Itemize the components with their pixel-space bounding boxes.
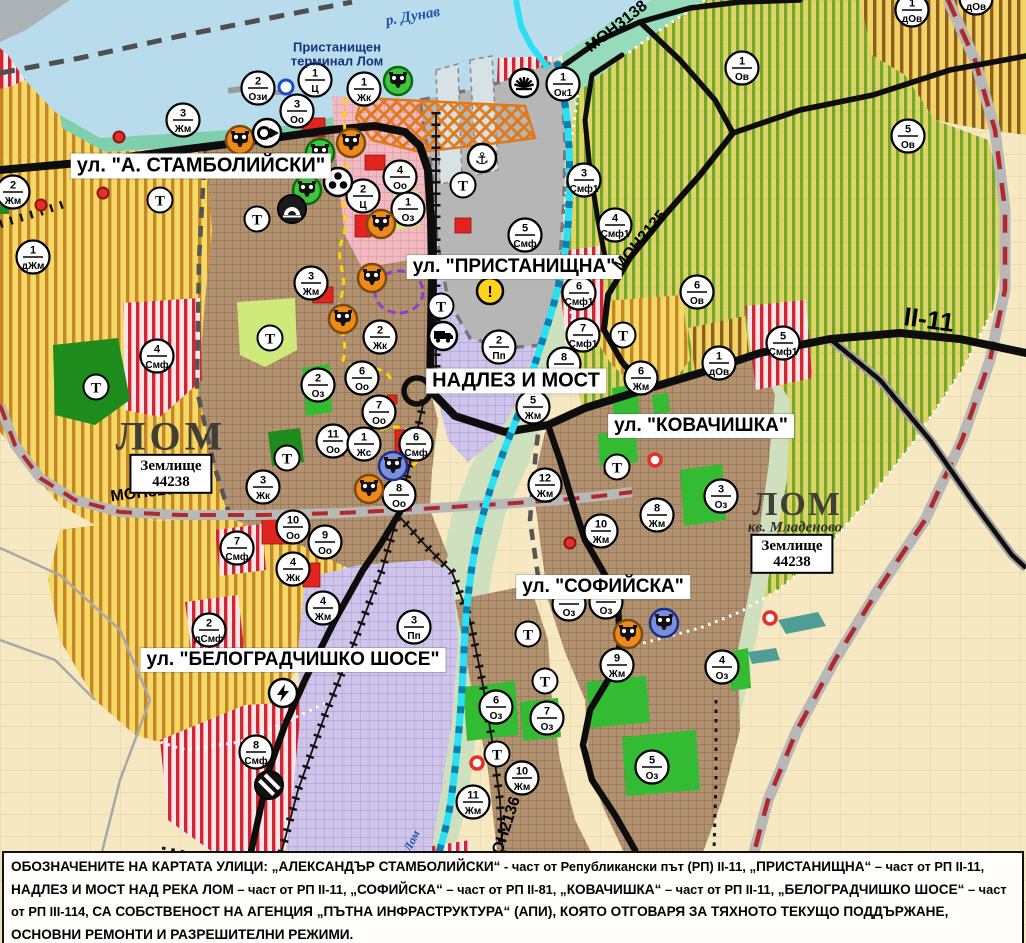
svg-text:Смф1: Смф1 — [570, 183, 599, 195]
zone-marker[interactable]: 4Жк — [277, 553, 310, 586]
svg-text:Жм: Жм — [174, 124, 191, 135]
svg-text:Т: Т — [458, 179, 468, 195]
zone-marker[interactable]: 1Ц — [299, 64, 332, 97]
svg-text:Смф: Смф — [225, 551, 248, 563]
zone-marker[interactable]: 2Пп — [483, 331, 516, 364]
svg-text:Т: Т — [252, 213, 262, 229]
zone-marker[interactable]: 8 — [548, 348, 581, 381]
zone-marker[interactable]: 10Жм — [585, 515, 618, 548]
transport-marker[interactable]: Т — [605, 455, 630, 480]
zone-marker[interactable]: 10Жм — [506, 762, 539, 795]
svg-text:Оз: Оз — [402, 213, 415, 224]
zone-marker[interactable]: 5Смф — [509, 219, 542, 252]
transport-marker[interactable]: Т — [485, 742, 510, 767]
svg-text:Ов: Ов — [901, 140, 915, 151]
svg-text:7: 7 — [376, 400, 382, 412]
transport-marker[interactable]: Т — [533, 669, 558, 694]
svg-text:Пп: Пп — [492, 351, 505, 362]
svg-text:Ок1: Ок1 — [554, 88, 573, 99]
svg-text:1: 1 — [361, 77, 367, 89]
transport-marker[interactable]: Т — [84, 375, 109, 400]
svg-text:Жм: Жм — [536, 489, 553, 500]
svg-text:Смф: Смф — [513, 238, 536, 250]
svg-text:8: 8 — [253, 740, 259, 752]
svg-text:Ц: Ц — [359, 200, 367, 211]
zone-marker[interactable]: 5Смф1 — [767, 327, 800, 360]
zone-marker[interactable]: 12Жм — [529, 469, 562, 502]
svg-text:Жм: Жм — [592, 535, 609, 546]
svg-text:2: 2 — [206, 618, 212, 630]
svg-text:Т: Т — [265, 332, 275, 348]
svg-text:10: 10 — [287, 515, 299, 527]
zone-marker[interactable]: 7Смф — [221, 532, 254, 565]
svg-text:Смф: Смф — [404, 447, 427, 459]
svg-text:Оо: Оо — [355, 382, 369, 393]
zone-marker[interactable]: 9Жм — [601, 649, 634, 682]
svg-text:Оз: Оз — [716, 671, 729, 682]
svg-text:Оз: Оз — [646, 771, 659, 782]
svg-text:2: 2 — [360, 184, 366, 196]
map-canvas: 2Ози1Ц1Жк3Оо3Жм2Жм1дЖм1Ок13Смф14Смф15Смф… — [0, 0, 1026, 943]
svg-text:Ов: Ов — [690, 296, 704, 307]
culture-orange-icon[interactable] — [226, 126, 254, 154]
transport-marker[interactable]: Т — [275, 446, 300, 471]
svg-text:6: 6 — [359, 366, 365, 378]
svg-text:7: 7 — [234, 536, 240, 548]
svg-text:Жм: Жм — [302, 287, 319, 298]
legend-note-segment: „СОФИЙСКА“ — [350, 882, 443, 897]
svg-text:Жм: Жм — [314, 612, 331, 623]
svg-text:Жк: Жк — [356, 93, 372, 104]
svg-text:Смф1: Смф1 — [601, 228, 630, 240]
warning-icon[interactable]: ! — [477, 278, 503, 304]
red-dot — [114, 132, 125, 143]
red-ring — [471, 757, 483, 769]
svg-text:3: 3 — [294, 99, 300, 111]
svg-text:1: 1 — [30, 245, 36, 257]
svg-text:4: 4 — [154, 344, 161, 356]
svg-text:3: 3 — [260, 475, 266, 487]
truck-icon[interactable] — [429, 322, 457, 350]
svg-text:Смф1: Смф1 — [569, 338, 598, 350]
culture-blue-icon[interactable] — [379, 452, 407, 480]
svg-text:Жм: Жм — [648, 519, 665, 530]
svg-text:4: 4 — [320, 596, 327, 608]
svg-text:Смф: Смф — [244, 755, 267, 767]
svg-text:Оо: Оо — [393, 181, 407, 192]
culture-green-icon[interactable] — [384, 67, 412, 95]
marker-overlay: 2Ози1Ц1Жк3Оо3Жм2Жм1дЖм1Ок13Смф14Смф15Смф… — [0, 0, 1026, 943]
svg-text:Жс: Жс — [356, 448, 372, 459]
red-ring — [764, 612, 776, 624]
svg-text:Смф: Смф — [145, 359, 168, 371]
zone-marker[interactable]: 4Жм — [307, 592, 340, 625]
legend-note-segment: „БЕЛОГРАДЧИШКО ШОСЕ“ — [778, 882, 965, 897]
svg-text:9: 9 — [322, 530, 328, 542]
culture-orange-icon[interactable] — [355, 475, 383, 503]
svg-text:Оз: Оз — [541, 722, 554, 733]
zone-marker[interactable]: 1Ов — [726, 52, 759, 85]
zone-marker[interactable]: 5Жм — [517, 391, 550, 424]
svg-text:Т: Т — [436, 300, 446, 316]
zone-marker[interactable]: 10Оо — [277, 511, 310, 544]
zone-marker[interactable]: 4Оо — [384, 161, 417, 194]
zone-marker[interactable]: 6Смф1 — [563, 277, 596, 310]
transport-marker[interactable]: Т — [148, 188, 173, 213]
zone-marker[interactable]: 2Оз — [302, 369, 335, 402]
svg-text:Т: Т — [91, 381, 101, 397]
svg-text:3: 3 — [180, 108, 186, 120]
zone-marker[interactable]: 7Оо — [363, 396, 396, 429]
svg-text:1: 1 — [560, 72, 566, 84]
zone-marker[interactable]: 2Жм — [0, 176, 30, 209]
svg-text:5: 5 — [522, 223, 528, 235]
svg-text:!: ! — [487, 284, 492, 301]
svg-text:5: 5 — [780, 331, 786, 343]
transport-marker[interactable]: Т — [245, 207, 270, 232]
zone-marker[interactable]: 4Смф — [141, 340, 174, 373]
svg-text:Жк: Жк — [255, 491, 271, 502]
zone-marker[interactable]: 3Жм — [295, 267, 328, 300]
svg-text:1: 1 — [405, 197, 411, 209]
svg-text:Т: Т — [612, 461, 622, 477]
svg-text:8: 8 — [396, 483, 402, 495]
svg-text:Жк: Жк — [372, 341, 388, 352]
transport-marker[interactable]: Т — [258, 326, 283, 351]
svg-text:Т: Т — [492, 748, 502, 764]
zone-marker[interactable]: 3Оо — [281, 95, 314, 128]
culture-orange-icon[interactable] — [614, 620, 642, 648]
svg-text:Жм: Жм — [464, 806, 481, 817]
svg-text:11: 11 — [327, 429, 339, 441]
zone-marker[interactable]: 2Ози — [242, 72, 275, 105]
svg-text:1: 1 — [716, 351, 722, 363]
legend-note: ОБОЗНАЧЕНИТЕ НА КАРТАТА УЛИЦИ: „АЛЕКСАНД… — [2, 851, 1024, 943]
zone-marker[interactable]: 3Жм — [167, 104, 200, 137]
legend-note-segment: – част от РП II-11, — [871, 859, 984, 874]
svg-text:Т: Т — [523, 628, 533, 644]
svg-text:Жк: Жк — [285, 573, 301, 584]
transport-marker[interactable]: Т — [451, 173, 476, 198]
svg-text:Оз: Оз — [312, 389, 325, 400]
svg-text:Оо: Оо — [318, 546, 332, 557]
svg-text:Жм: Жм — [4, 196, 21, 207]
svg-text:Оз: Оз — [490, 711, 503, 722]
legend-note-segment: - част от Републикански път (РП) II-11, — [500, 859, 749, 874]
blue-ring — [279, 80, 293, 94]
zone-marker[interactable]: 1дОв — [703, 347, 736, 380]
svg-text:6: 6 — [638, 366, 644, 378]
svg-text:⚓: ⚓ — [475, 149, 489, 168]
svg-text:7: 7 — [544, 706, 550, 718]
svg-text:дОв: дОв — [709, 367, 729, 378]
svg-text:3: 3 — [308, 271, 314, 283]
svg-text:1: 1 — [361, 432, 367, 444]
svg-text:10: 10 — [595, 519, 607, 531]
svg-text:3: 3 — [411, 615, 417, 627]
zone-marker[interactable]: 3Пп — [398, 611, 431, 644]
svg-text:Смф1: Смф1 — [565, 296, 594, 308]
transport-marker[interactable]: Т — [429, 294, 454, 319]
zone-marker[interactable]: 5Ов — [892, 120, 925, 153]
zone-marker[interactable]: 7Оз — [531, 702, 564, 735]
svg-text:3: 3 — [581, 168, 587, 180]
svg-text:10: 10 — [516, 766, 528, 778]
svg-text:2: 2 — [255, 76, 261, 88]
svg-text:6: 6 — [694, 280, 700, 292]
zone-marker[interactable]: 8Смф — [240, 736, 273, 769]
zone-marker[interactable]: 2Жк — [364, 321, 397, 354]
svg-text:Оо: Оо — [286, 531, 300, 542]
svg-text:Оо: Оо — [326, 445, 340, 456]
red-dot — [565, 538, 576, 549]
svg-text:1: 1 — [312, 68, 318, 80]
zone-marker[interactable]: 6Оз — [480, 691, 513, 724]
crane-icon[interactable] — [510, 69, 538, 97]
svg-text:12: 12 — [539, 473, 551, 485]
legend-note-segment: „ПРИСТАНИЩНА“ — [749, 859, 871, 874]
zone-marker[interactable]: 3Смф1 — [568, 164, 601, 197]
svg-text:4: 4 — [290, 557, 297, 569]
lightning-icon[interactable] — [269, 679, 297, 707]
svg-text:дОв: дОв — [902, 14, 922, 25]
svg-text:6: 6 — [413, 432, 419, 444]
zone-marker[interactable]: 6Жм — [625, 362, 658, 395]
svg-text:6: 6 — [576, 281, 582, 293]
culture-orange-icon[interactable] — [367, 210, 395, 238]
svg-text:Оо: Оо — [290, 115, 304, 126]
trefoil-icon[interactable] — [324, 168, 352, 196]
legend-note-segment: – част от РП II-11, — [661, 882, 777, 897]
transport-marker[interactable]: Т — [611, 323, 636, 348]
zone-marker[interactable]: 4Оз — [706, 651, 739, 684]
svg-text:2: 2 — [377, 325, 383, 337]
zone-marker[interactable]: Оз — [553, 588, 586, 621]
svg-text:5: 5 — [649, 755, 655, 767]
svg-text:2: 2 — [10, 180, 16, 192]
red-dot — [98, 188, 109, 199]
culture-blue-icon[interactable] — [650, 609, 678, 637]
zone-marker[interactable]: 9Оо — [309, 526, 342, 559]
culture-orange-icon[interactable] — [329, 305, 357, 333]
zone-marker[interactable]: 1дОв — [960, 0, 993, 15]
svg-text:5: 5 — [530, 395, 536, 407]
svg-text:Жм: Жм — [632, 382, 649, 393]
zone-marker[interactable]: 8Жм — [641, 499, 674, 532]
legend-note-segment: – част от РП II-81, — [443, 882, 560, 897]
red-ring — [649, 454, 661, 466]
zone-marker[interactable]: 4Смф1 — [599, 209, 632, 242]
svg-text:7: 7 — [580, 323, 586, 335]
zone-marker[interactable]: 1дЖм — [17, 241, 50, 274]
svg-text:Т: Т — [282, 452, 292, 468]
zone-marker[interactable]: 8Оо — [383, 479, 416, 512]
zone-marker[interactable]: 1Ок1 — [547, 68, 580, 101]
zone-marker[interactable]: 1Жк — [348, 73, 381, 106]
svg-text:3: 3 — [718, 484, 724, 496]
svg-text:2: 2 — [496, 335, 502, 347]
svg-text:Жм: Жм — [524, 411, 541, 422]
culture-green-icon[interactable] — [306, 139, 334, 167]
svg-text:Т: Т — [155, 194, 165, 210]
zone-marker[interactable]: 6Смф — [400, 428, 433, 461]
svg-text:11: 11 — [467, 790, 479, 802]
zone-marker[interactable]: 5Оз — [636, 751, 669, 784]
zone-marker[interactable]: 3Оз — [705, 480, 738, 513]
zone-marker[interactable]: 11Жм — [457, 786, 490, 819]
zone-marker[interactable]: 3Жк — [247, 471, 280, 504]
legend-note-segment: НАДЛЕЗ И МОСТ НАД РЕКА ЛОМ — [11, 882, 234, 897]
svg-text:Т: Т — [618, 329, 628, 345]
svg-text:дОв: дОв — [966, 2, 986, 13]
culture-orange-icon[interactable] — [358, 264, 386, 292]
svg-text:Ц: Ц — [311, 84, 319, 95]
legend-note-segment: ОБОЗНАЧЕНИТЕ НА КАРТАТА УЛИЦИ: „АЛЕКСАНД… — [11, 859, 500, 874]
legend-note-segment: „КОВАЧИШКА“ — [560, 882, 661, 897]
legend-note-segment: СА СОБСТВЕНОСТ НА АГЕНЦИЯ „ПЪТНА ИНФРАСТ… — [11, 904, 948, 942]
svg-text:Ов: Ов — [735, 72, 749, 83]
svg-text:Оз: Оз — [563, 608, 576, 619]
svg-text:Жм: Жм — [608, 669, 625, 680]
zone-marker[interactable]: 7Смф1 — [567, 319, 600, 352]
svg-text:Оо: Оо — [392, 499, 406, 510]
culture-orange-icon[interactable] — [337, 129, 365, 157]
svg-text:дСмф: дСмф — [194, 633, 224, 645]
zone-marker[interactable]: 1Жс — [348, 428, 381, 461]
svg-text:4: 4 — [397, 165, 404, 177]
zone-marker[interactable]: 2дСмф — [193, 614, 226, 647]
svg-text:9: 9 — [614, 653, 620, 665]
svg-text:Ози: Ози — [249, 92, 268, 103]
legend-note-segment: – част от РП II-11, — [234, 882, 350, 897]
svg-text:4: 4 — [719, 655, 726, 667]
zone-marker[interactable]: 6Ов — [681, 276, 714, 309]
svg-text:Т: Т — [540, 675, 550, 691]
zone-marker[interactable]: 1дОв — [896, 0, 929, 27]
svg-text:Пп: Пп — [407, 631, 420, 642]
svg-text:8: 8 — [654, 503, 660, 515]
zone-marker[interactable]: 6Оо — [346, 362, 379, 395]
svg-text:6: 6 — [493, 695, 499, 707]
svg-text:5: 5 — [905, 124, 911, 136]
svg-text:1: 1 — [739, 56, 745, 68]
monument-icon[interactable] — [253, 119, 281, 147]
zone-marker[interactable]: 1Оз — [392, 193, 425, 226]
tunnel-icon[interactable] — [278, 195, 306, 223]
svg-text:Оз: Оз — [715, 500, 728, 511]
svg-text:1: 1 — [909, 0, 915, 10]
transport-marker[interactable]: Т — [516, 622, 541, 647]
anchor-icon[interactable]: ⚓ — [468, 144, 496, 172]
svg-text:дЖм: дЖм — [22, 261, 45, 272]
red-dot — [36, 200, 47, 211]
svg-text:4: 4 — [612, 213, 619, 225]
zone-marker[interactable]: 11Оо — [317, 425, 350, 458]
svg-text:Оз: Оз — [600, 606, 613, 617]
svg-text:8: 8 — [561, 352, 567, 364]
svg-text:Оо: Оо — [372, 416, 386, 427]
crossing-icon[interactable] — [255, 771, 283, 799]
zone-marker[interactable]: Оз — [590, 586, 623, 619]
svg-text:Смф1: Смф1 — [769, 346, 798, 358]
svg-text:2: 2 — [315, 373, 321, 385]
svg-text:Жм: Жм — [513, 782, 530, 793]
